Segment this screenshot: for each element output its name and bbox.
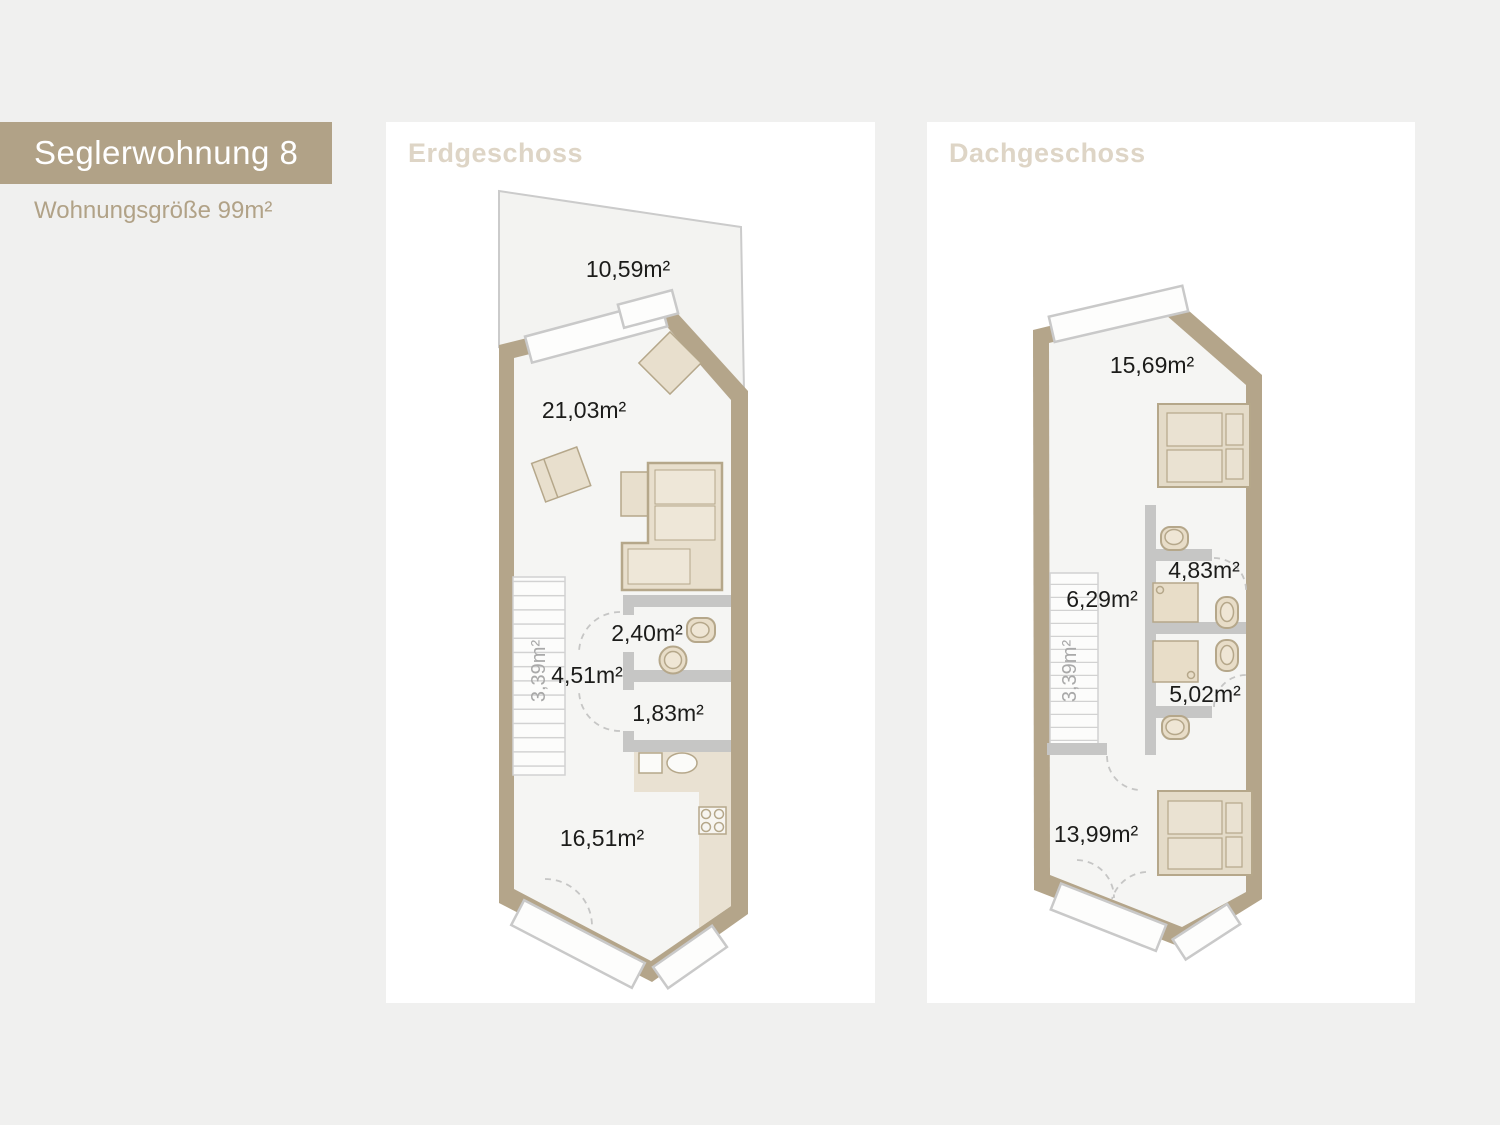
- washbasin-top-icon: [1216, 597, 1238, 628]
- area-label-stairs: 3,39m²: [1059, 640, 1081, 703]
- kitchen-sink: [667, 753, 697, 773]
- bed-bottom: [1158, 791, 1252, 875]
- bed-top: [1158, 404, 1250, 487]
- area-label-bath-top: 4,83m²: [1168, 557, 1240, 583]
- area-label-living: 21,03m²: [542, 397, 627, 423]
- washbasin-bottom-icon: [1216, 640, 1238, 671]
- toilet-bottom-icon: [1162, 716, 1189, 739]
- toilet-icon: [687, 618, 715, 642]
- area-label-bottom-room: 13,99m²: [1054, 821, 1139, 847]
- toilet-top-icon: [1161, 527, 1188, 550]
- shower-top: [1153, 583, 1198, 622]
- floorplan-panel-dachgeschoss: Dachgeschoss: [927, 122, 1415, 1003]
- page-title: Seglerwohnung 8: [34, 134, 298, 171]
- kitchen-counter: [639, 753, 662, 773]
- area-label-wc: 1,83m²: [632, 700, 704, 726]
- area-label-stairs: 3,39m²: [528, 640, 550, 703]
- area-label-landing: 6,29m²: [1066, 586, 1138, 612]
- floorplan-erdgeschoss: 10,59m² 21,03m² 2,40m² 4,51m² 1,83m² 16,…: [386, 122, 875, 1003]
- page: { "header": { "title": "Seglerwohnung 8"…: [0, 0, 1500, 1125]
- area-label-bath-bottom: 5,02m²: [1169, 681, 1241, 707]
- area-label-bath: 2,40m²: [611, 620, 683, 646]
- shower-bottom: [1153, 641, 1198, 682]
- area-label-terrace: 10,59m²: [586, 256, 671, 282]
- floorplan-panel-erdgeschoss: Erdgeschoss: [386, 122, 875, 1003]
- washbasin-icon: [660, 647, 687, 674]
- coffee-table: [621, 472, 649, 516]
- title-box: Seglerwohnung 8: [0, 122, 332, 184]
- area-label-top-room: 15,69m²: [1110, 352, 1195, 378]
- stove-icon: [699, 807, 726, 834]
- page-subtitle: Wohnungsgröße 99m²: [34, 197, 272, 225]
- area-label-room: 16,51m²: [560, 825, 645, 851]
- floorplan-dachgeschoss: 15,69m² 4,83m² 6,29m² 5,02m² 13,99m² 3,3…: [927, 122, 1415, 1003]
- area-label-hall: 4,51m²: [551, 662, 623, 688]
